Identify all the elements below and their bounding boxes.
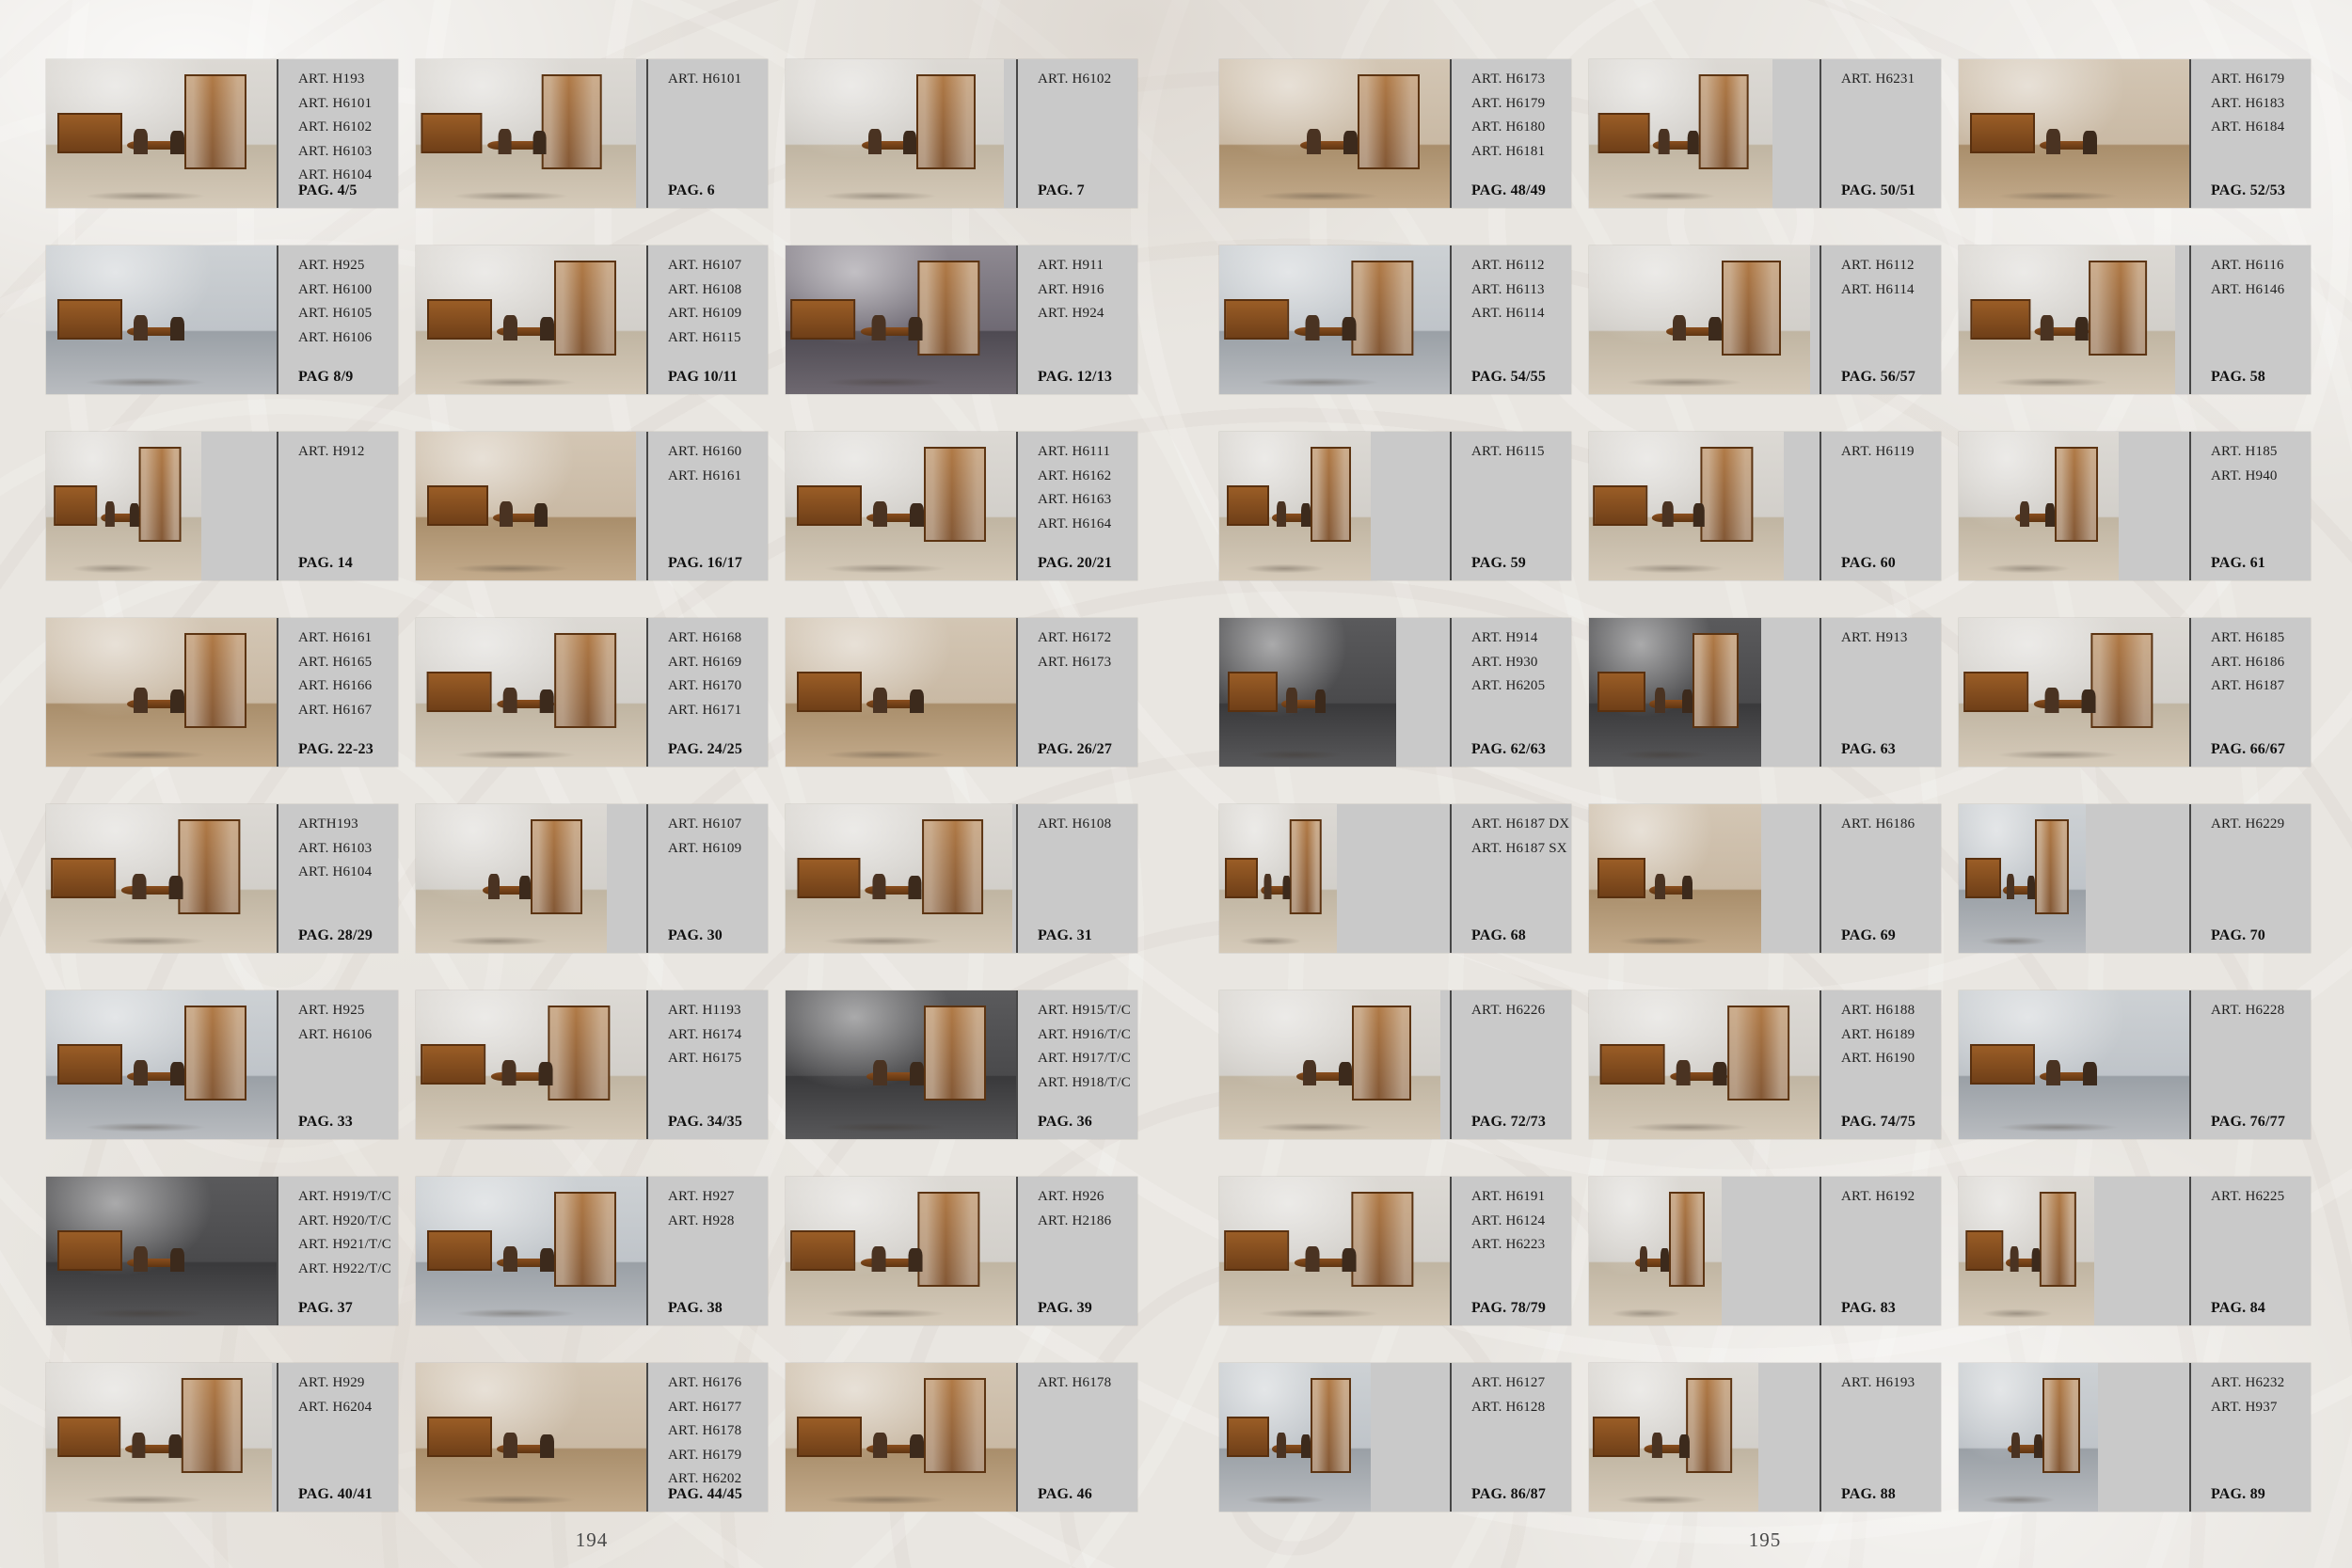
catalog-entry[interactable]: ART. H6191ART. H6124ART. H6223PAG. 78/79 [1219,1177,1571,1325]
furniture-silhouette [421,113,483,153]
page-reference: PAG. 46 [1038,1486,1092,1503]
info-text-column: ART. H913PAG. 63 [1841,626,1941,758]
art-number: ART. H6104 [298,861,398,885]
furniture-silhouette [1607,376,1762,388]
catalog-entry[interactable]: ART. H6112ART. H6113ART. H6114PAG. 54/55 [1219,245,1571,394]
furniture-silhouette [1655,688,1665,713]
furniture-silhouette [1699,74,1749,169]
catalog-entry[interactable]: ART. H185ART. H940PAG. 61 [1959,432,2311,580]
info-text-column: ART. H6108PAG. 31 [1038,813,1137,944]
furniture-silhouette [873,1060,887,1085]
furniture-photo [786,432,1016,580]
furniture-silhouette [1693,503,1705,527]
furniture-silhouette [797,672,862,712]
art-number: ART. H6205 [1471,674,1571,699]
furniture-silhouette [1339,1062,1352,1085]
furniture-silhouette [169,876,183,899]
furniture-silhouette [2011,1433,2020,1458]
furniture-silhouette [2040,1192,2076,1287]
art-number: ARTH193 [298,813,398,837]
furniture-silhouette [790,299,855,340]
furniture-silhouette [804,562,966,575]
art-number: ART. H6179 [1471,92,1571,117]
art-number: ART. H6103 [298,140,398,165]
art-number: ART. H6174 [668,1023,768,1048]
catalog-entry[interactable]: ART. H925ART. H6100ART. H6105ART. H6106P… [46,245,398,394]
catalog-entry[interactable]: ART. H6101PAG. 6 [416,59,768,208]
page-reference: PAG. 50/51 [1841,182,1915,199]
info-text-column: ART. H6231PAG. 50/51 [1841,68,1941,199]
furniture-silhouette [539,1062,553,1085]
art-number: ART. H6103 [298,837,398,862]
catalog-entry[interactable]: ART. H6231PAG. 50/51 [1589,59,1941,208]
art-number: ART. H6181 [1471,140,1571,165]
page-reference: PAG. 33 [298,1114,353,1131]
art-number: ART. H6164 [1038,513,1137,537]
catalog-entry[interactable]: ART. H6119PAG. 60 [1589,432,1941,580]
page-194-grid: ART. H193ART. H6101ART. H6102ART. H6103A… [46,59,1137,1512]
info-text-column: ART. H6102PAG. 7 [1038,68,1137,199]
art-number: ART. H185 [2211,440,2311,465]
catalog-entry[interactable]: ART. H6172ART. H6173PAG. 26/27 [786,618,1137,767]
art-number: ART. H6231 [1841,68,1941,92]
catalog-entry[interactable]: ART. H914ART. H930ART. H6205PAG. 62/63 [1219,618,1571,767]
art-number: ART. H6170 [668,674,768,699]
furniture-silhouette [1224,1230,1289,1271]
furniture-silhouette [65,749,227,761]
furniture-photo [1959,245,2175,394]
furniture-silhouette [2089,261,2147,356]
furniture-photo [416,804,607,953]
furniture-silhouette [1233,749,1358,761]
art-number: ART. H6106 [298,1023,398,1048]
furniture-photo [46,59,277,208]
furniture-silhouette [1713,1062,1727,1085]
page-reference: PAG. 40/41 [298,1486,373,1503]
furniture-photo [1219,804,1337,953]
furniture-photo [46,990,277,1139]
art-number: ART. H6162 [1038,465,1137,489]
info-panel: ART. H925ART. H6100ART. H6105ART. H6106P… [277,245,398,394]
catalog-entry[interactable]: ART. H6107ART. H6109PAG. 30 [416,804,768,953]
furniture-silhouette [903,131,916,154]
furniture-silhouette [554,633,616,728]
furniture-silhouette [548,1006,610,1101]
info-panel: ART. H6119PAG. 60 [1784,432,1941,580]
furniture-silhouette [427,672,492,712]
catalog-entry[interactable]: ART. H6185ART. H6186ART. H6187PAG. 66/67 [1959,618,2311,767]
furniture-silhouette [917,261,979,356]
furniture-silhouette [435,1494,596,1506]
info-panel: ART. H6101PAG. 6 [636,59,768,208]
art-number: ART. H6160 [668,440,768,465]
info-panel: ART. H6115PAG. 59 [1371,432,1571,580]
info-panel: ART. H6191ART. H6124ART. H6223PAG. 78/79 [1450,1177,1571,1325]
furniture-photo [1589,618,1761,767]
furniture-silhouette [1603,749,1724,761]
art-number: ART. H6105 [298,302,398,326]
art-number: ART. H6228 [2211,999,2311,1023]
art-number: ART. H193 [298,68,398,92]
furniture-silhouette [1608,1121,1770,1133]
furniture-photo [1589,804,1761,953]
art-number: ART. H6114 [1471,302,1571,326]
catalog-entry[interactable]: ART. H6232ART. H937PAG. 89 [1959,1363,2311,1512]
art-number: ART. H6184 [2211,116,2311,140]
furniture-silhouette [65,190,227,202]
furniture-photo [1219,432,1371,580]
furniture-silhouette [1970,1044,2035,1085]
catalog-entry[interactable]: ART. H6111ART. H6162ART. H6163ART. H6164… [786,432,1137,580]
furniture-silhouette [1976,376,2127,388]
furniture-silhouette [134,1246,148,1272]
catalog-entry[interactable]: ART. H929ART. H6204PAG. 40/41 [46,1363,398,1512]
art-number: ART. H927 [668,1185,768,1210]
info-text-column: ART. H911ART. H916ART. H924PAG. 12/13 [1038,254,1137,386]
furniture-silhouette [804,376,966,388]
info-text-column: ART. H912PAG. 14 [298,440,398,572]
furniture-silhouette [1277,1433,1286,1458]
page-reference: PAG. 48/49 [1471,182,1546,199]
furniture-silhouette [64,1494,222,1506]
furniture-silhouette [1600,1044,1665,1085]
furniture-silhouette [1969,935,2058,947]
art-number: ART. H915/T/C [1038,999,1137,1023]
catalog-entry[interactable]: ART. H6226PAG. 72/73 [1219,990,1571,1139]
page-reference: PAG. 14 [298,555,353,572]
art-number: ART. H911 [1038,254,1137,278]
furniture-silhouette [873,1433,887,1458]
furniture-photo [786,245,1016,394]
page-reference: PAG. 69 [1841,927,1896,944]
catalog-entry[interactable]: ART. H193ART. H6101ART. H6102ART. H6103A… [46,59,398,208]
furniture-silhouette [2046,1060,2060,1085]
catalog-entry[interactable]: ART. H6229PAG. 70 [1959,804,2311,953]
furniture-silhouette [924,447,986,542]
furniture-silhouette [868,129,882,154]
furniture-silhouette [1978,1121,2139,1133]
art-number: ART. H921/T/C [298,1233,398,1258]
catalog-entry[interactable]: ART. H6102PAG. 7 [786,59,1137,208]
info-text-column: ART. H6226PAG. 72/73 [1471,999,1571,1131]
art-number: ART. H6111 [1038,440,1137,465]
furniture-silhouette [1963,672,2028,712]
catalog-entry[interactable]: ART. H6178PAG. 46 [786,1363,1137,1512]
catalog-entry[interactable]: ART. H6107ART. H6108ART. H6109ART. H6115… [416,245,768,394]
furniture-silhouette [2083,1062,2097,1085]
art-number: ART. H929 [298,1371,398,1396]
catalog-entry[interactable]: ART. H927ART. H928PAG. 38 [416,1177,768,1325]
catalog-entry[interactable]: ART. H6115PAG. 59 [1219,432,1571,580]
info-panel: ART. H912PAG. 14 [201,432,398,580]
art-number: ART. H6223 [1471,1233,1571,1258]
art-number: ART. H6229 [2211,813,2311,837]
furniture-silhouette [1598,113,1650,153]
page-reference: PAG. 83 [1841,1300,1896,1317]
art-number: ART. H6190 [1841,1047,1941,1071]
furniture-silhouette [1682,689,1692,713]
furniture-silhouette [2034,1434,2042,1458]
furniture-silhouette [1238,376,1400,388]
catalog-entry[interactable]: ART. H6228PAG. 76/77 [1959,990,2311,1139]
page-reference: PAG. 84 [2211,1300,2265,1317]
furniture-photo [786,804,1012,953]
furniture-silhouette [1315,689,1326,713]
furniture-silhouette [1688,131,1699,154]
furniture-silhouette [184,633,246,728]
page-number-left: 194 [46,1528,1137,1552]
catalog-entry[interactable]: ART. H6225PAG. 84 [1959,1177,2311,1325]
furniture-photo [1959,618,2189,767]
art-number: ART. H6127 [1471,1371,1571,1396]
info-text-column: ART. H914ART. H930ART. H6205PAG. 62/63 [1471,626,1571,758]
furniture-silhouette [873,501,887,527]
catalog-entry[interactable]: ART. H1193ART. H6174ART. H6175PAG. 34/35 [416,990,768,1139]
page-reference: PAG. 68 [1471,927,1526,944]
art-number: ART. H6101 [298,92,398,117]
catalog-entry[interactable]: ART. H6179ART. H6183ART. H6184PAG. 52/53 [1959,59,2311,208]
furniture-photo [1589,432,1784,580]
furniture-silhouette [1978,749,2139,761]
furniture-silhouette [1669,1192,1705,1287]
art-number: ART. H6232 [2211,1371,2311,1396]
furniture-silhouette [1727,1006,1789,1101]
info-text-column: ART. H6228PAG. 76/77 [2211,999,2311,1131]
furniture-silhouette [170,131,184,154]
furniture-silhouette [168,1434,182,1458]
info-panel: ART. H6173ART. H6179ART. H6180ART. H6181… [1450,59,1571,208]
catalog-entry[interactable]: ART. H6161ART. H6165ART. H6166ART. H6167… [46,618,398,767]
art-number: ART. H6101 [668,68,768,92]
furniture-photo [786,1363,1016,1512]
info-text-column: ART. H915/T/CART. H916/T/CART. H917/T/CA… [1038,999,1137,1131]
info-panel: ART. H185ART. H940PAG. 61 [2119,432,2311,580]
furniture-silhouette [1679,1434,1690,1458]
art-number: ART. H6102 [1038,68,1137,92]
furniture-silhouette [1692,633,1739,728]
page-reference: PAG. 30 [668,927,723,944]
art-number: ART. H6163 [1038,488,1137,513]
furniture-silhouette [105,501,115,527]
page-reference: PAG. 6 [668,182,715,199]
furniture-silhouette [797,858,860,898]
furniture-silhouette [1238,190,1400,202]
info-text-column: ART. H193ART. H6101ART. H6102ART. H6103A… [298,68,398,199]
page-reference: PAG. 63 [1841,741,1896,758]
info-panel: ART. H6179ART. H6183ART. H6184PAG. 52/53 [2189,59,2311,208]
art-number: ART. H928 [668,1210,768,1234]
furniture-silhouette [540,317,554,341]
furniture-silhouette [533,131,547,154]
furniture-silhouette [1306,1246,1320,1272]
furniture-photo [1589,1363,1758,1512]
art-number: ART. H922/T/C [298,1258,398,1282]
furniture-silhouette [1224,299,1289,340]
furniture-silhouette [184,74,246,169]
furniture-silhouette [427,485,489,526]
furniture-silhouette [797,485,862,526]
furniture-silhouette [1283,876,1291,899]
furniture-photo [1959,804,2086,953]
info-panel: ART. H6108PAG. 31 [1012,804,1137,953]
info-text-column: ART. H6112ART. H6113ART. H6114PAG. 54/55 [1471,254,1571,386]
furniture-photo [1219,618,1396,767]
catalog-entry[interactable]: ART. H911ART. H916ART. H924PAG. 12/13 [786,245,1137,394]
art-number: ART. H930 [1471,651,1571,675]
catalog-entry[interactable]: ART. H6187 DXART. H6187 SXPAG. 68 [1219,804,1571,953]
art-number: ART. H6175 [668,1047,768,1071]
furniture-silhouette [2020,501,2029,527]
furniture-silhouette [427,1417,492,1457]
info-text-column: ART. H6168ART. H6169ART. H6170ART. H6171… [668,626,768,758]
catalog-entry[interactable]: ART. H6192PAG. 83 [1589,1177,1941,1325]
furniture-photo [786,990,1016,1139]
info-text-column: ART. H6161ART. H6165ART. H6166ART. H6167… [298,626,398,758]
art-number: ART. H6179 [2211,68,2311,92]
catalog-entry[interactable]: ART. H6160ART. H6161PAG. 16/17 [416,432,768,580]
info-panel: ART. H914ART. H930ART. H6205PAG. 62/63 [1396,618,1571,767]
info-text-column: ART. H6229PAG. 70 [2211,813,2311,944]
furniture-photo [1589,990,1820,1139]
art-number: ART. H6106 [298,326,398,351]
catalog-entry[interactable]: ARTH193ART. H6103ART. H6104PAG. 28/29 [46,804,398,953]
furniture-silhouette [500,501,513,527]
furniture-silhouette [170,1062,184,1085]
art-number: ART. H6102 [298,116,398,140]
furniture-silhouette [1232,562,1338,575]
art-number: ART. H6116 [2211,254,2311,278]
catalog-entry[interactable]: ART. H915/T/CART. H916/T/CART. H917/T/CA… [786,990,1137,1139]
catalog-entry[interactable]: ART. H6188ART. H6189ART. H6190PAG. 74/75 [1589,990,1941,1139]
page-reference: PAG. 86/87 [1471,1486,1546,1503]
info-panel: ART. H6226PAG. 72/73 [1440,990,1571,1139]
info-panel: ARTH193ART. H6103ART. H6104PAG. 28/29 [277,804,398,953]
furniture-photo [786,59,1004,208]
art-number: ART. H6167 [298,699,398,723]
art-number: ART. H6109 [668,837,768,862]
furniture-silhouette [503,688,517,713]
furniture-silhouette [908,876,921,899]
furniture-silhouette [924,1006,986,1101]
page-reference: PAG. 62/63 [1471,741,1546,758]
catalog-entry[interactable]: ART. H913PAG. 63 [1589,618,1941,767]
catalog-entry[interactable]: ART. H6116ART. H6146PAG. 58 [1959,245,2311,394]
info-panel: ART. H919/T/CART. H920/T/CART. H921/T/CA… [277,1177,398,1325]
page-reference: PAG. 70 [2211,927,2265,944]
catalog-entry[interactable]: ART. H6108PAG. 31 [786,804,1137,953]
furniture-photo [416,59,636,208]
furniture-photo [46,245,277,394]
furniture-silhouette [2035,819,2069,914]
art-number: ART. H6108 [668,278,768,303]
catalog-entry[interactable]: ART. H925ART. H6106PAG. 33 [46,990,398,1139]
furniture-silhouette [804,1494,966,1506]
furniture-silhouette [58,562,167,575]
art-number: ART. H6171 [668,699,768,723]
art-number: ART. H920/T/C [298,1210,398,1234]
furniture-silhouette [542,74,601,169]
furniture-photo [1219,1363,1371,1512]
furniture-photo [1959,1363,2098,1512]
catalog-entry[interactable]: ART. H6112ART. H6114PAG. 56/57 [1589,245,1941,394]
info-panel: ART. H6232ART. H937PAG. 89 [2098,1363,2311,1512]
furniture-silhouette [916,74,976,169]
furniture-silhouette [170,689,184,713]
furniture-photo [416,432,636,580]
catalog-entry[interactable]: ART. H912PAG. 14 [46,432,398,580]
info-text-column: ART. H6191ART. H6124ART. H6223PAG. 78/79 [1471,1185,1571,1317]
catalog-entry[interactable]: ART. H6193PAG. 88 [1589,1363,1941,1512]
furniture-silhouette [910,1062,924,1085]
art-number: ART. H6107 [668,813,768,837]
furniture-photo [416,618,646,767]
art-number: ART. H940 [2211,465,2311,489]
furniture-silhouette [922,819,983,914]
catalog-entry[interactable]: ART. H6186PAG. 69 [1589,804,1941,953]
furniture-silhouette [431,935,564,947]
page-reference: PAG. 20/21 [1038,555,1112,572]
info-text-column: ART. H6101PAG. 6 [668,68,768,199]
art-number: ART. H6187 DX [1471,813,1571,837]
furniture-silhouette [1238,1307,1400,1320]
art-number: ART. H6180 [1471,116,1571,140]
furniture-silhouette [1970,113,2035,153]
page-reference: PAG. 37 [298,1300,353,1317]
furniture-silhouette [51,858,116,898]
furniture-photo [786,1177,1016,1325]
furniture-silhouette [133,874,147,899]
info-panel: ART. H6176ART. H6177ART. H6178ART. H6179… [646,1363,768,1512]
info-panel: ART. H911ART. H916ART. H924PAG. 12/13 [1016,245,1137,394]
info-panel: ART. H926ART. H2186PAG. 39 [1016,1177,1137,1325]
furniture-silhouette [65,935,227,947]
page-reference: PAG. 58 [2211,369,2265,386]
page-reference: PAG. 36 [1038,1114,1092,1131]
catalog-entry[interactable]: ART. H926ART. H2186PAG. 39 [786,1177,1137,1325]
info-panel: ART. H6225PAG. 84 [2094,1177,2311,1325]
furniture-silhouette [872,315,886,341]
info-panel: ART. H6178PAG. 46 [1016,1363,1137,1512]
furniture-silhouette [1277,501,1286,527]
furniture-silhouette [2007,874,2014,899]
catalog-entry[interactable]: ART. H6173ART. H6179ART. H6180ART. H6181… [1219,59,1571,208]
info-panel: ART. H6112ART. H6113ART. H6114PAG. 54/55 [1450,245,1571,394]
art-number: ART. H916/T/C [1038,1023,1137,1048]
art-number: ART. H926 [1038,1185,1137,1210]
furniture-silhouette [531,819,582,914]
catalog-entry[interactable]: ART. H6168ART. H6169ART. H6170ART. H6171… [416,618,768,767]
info-panel: ART. H6116ART. H6146PAG. 58 [2175,245,2311,394]
info-text-column: ART. H6172ART. H6173PAG. 26/27 [1038,626,1137,758]
catalog-entry[interactable]: ART. H6176ART. H6177ART. H6178ART. H6179… [416,1363,768,1512]
furniture-silhouette [1343,317,1357,341]
furniture-silhouette [427,299,492,340]
furniture-photo [416,245,646,394]
art-number: ART. H6191 [1471,1185,1571,1210]
info-panel: ART. H6186PAG. 69 [1761,804,1941,953]
info-text-column: ART. H6179ART. H6183ART. H6184PAG. 52/53 [2211,68,2311,199]
furniture-photo [1589,245,1810,394]
art-number: ART. H6172 [1038,626,1137,651]
art-number: ART. H6204 [298,1396,398,1420]
catalog-entry[interactable]: ART. H919/T/CART. H920/T/CART. H921/T/CA… [46,1177,398,1325]
info-panel: ART. H6160ART. H6161PAG. 16/17 [636,432,768,580]
page-reference: PAG. 38 [668,1300,723,1317]
info-panel: ART. H6187 DXART. H6187 SXPAG. 68 [1337,804,1571,953]
info-panel: ART. H6102PAG. 7 [1004,59,1137,208]
furniture-silhouette [917,1192,979,1287]
catalog-entry[interactable]: ART. H6127ART. H6128PAG. 86/87 [1219,1363,1571,1512]
